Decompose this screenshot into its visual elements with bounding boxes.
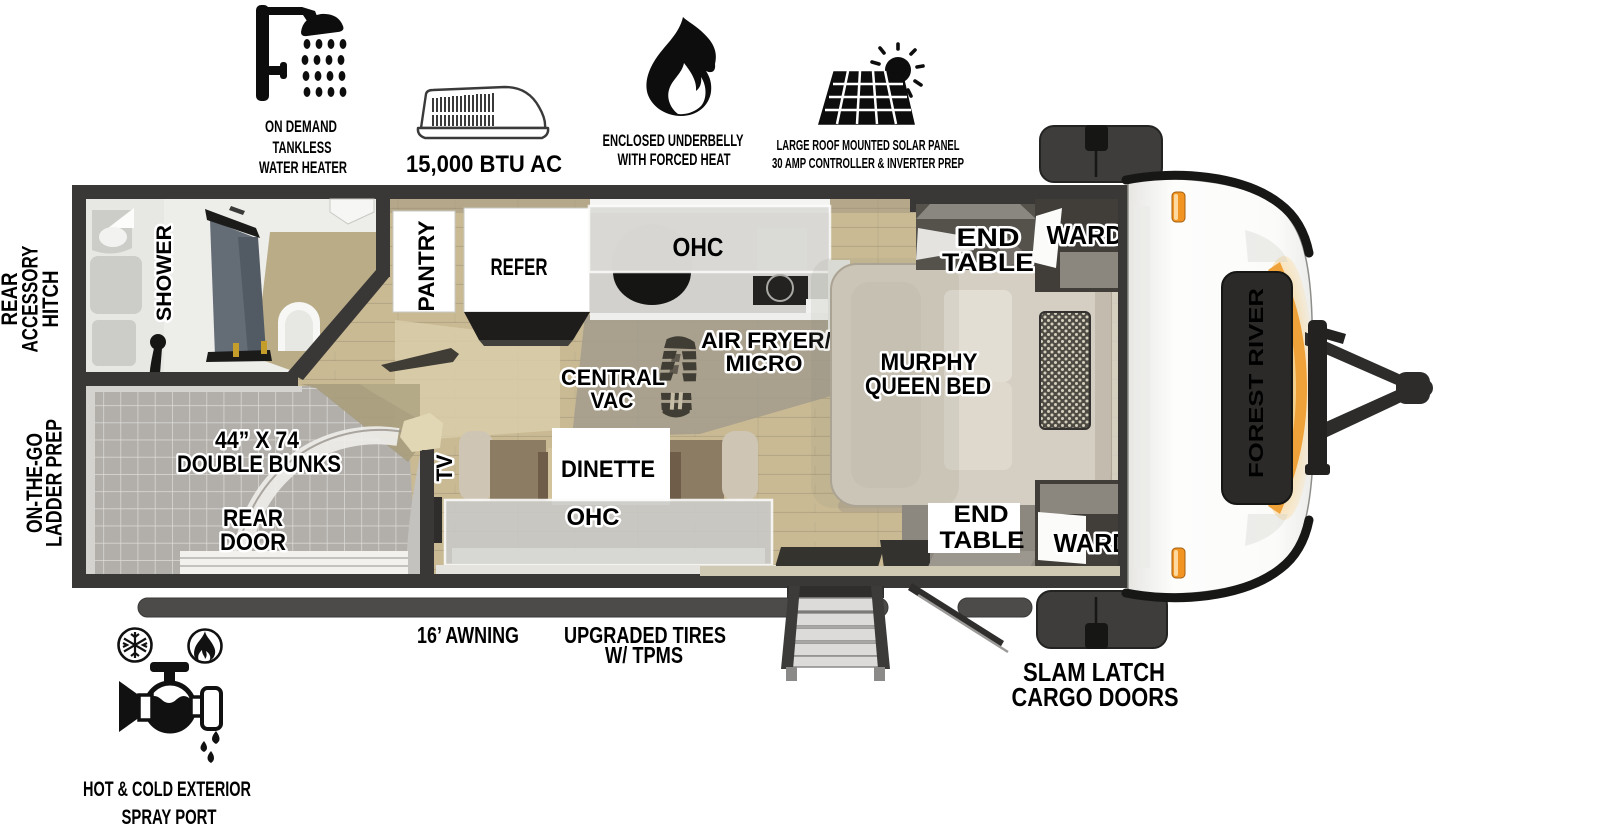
svg-text:FOREST RIVER: FOREST RIVER <box>1246 287 1268 478</box>
svg-text:WATER HEATER: WATER HEATER <box>259 158 347 177</box>
svg-text:MURPHY: MURPHY <box>881 349 978 376</box>
svg-text:TABLE: TABLE <box>942 249 1034 277</box>
svg-text:DINETTE: DINETTE <box>561 456 655 483</box>
svg-text:REFER: REFER <box>491 254 548 281</box>
svg-text:W/ TPMS: W/ TPMS <box>605 642 683 668</box>
svg-text:VAC: VAC <box>591 388 634 413</box>
svg-text:DOUBLE BUNKS: DOUBLE BUNKS <box>177 451 341 478</box>
svg-text:TANKLESS: TANKLESS <box>273 138 332 157</box>
svg-text:WARD: WARD <box>1047 220 1124 250</box>
svg-text:SPRAY PORT: SPRAY PORT <box>122 806 217 829</box>
svg-text:CARGO DOORS: CARGO DOORS <box>1012 682 1179 712</box>
svg-text:15,000 BTU AC: 15,000 BTU AC <box>406 151 562 178</box>
svg-text:CENTRAL: CENTRAL <box>561 365 665 390</box>
svg-text:ENCLOSED UNDERBELLY: ENCLOSED UNDERBELLY <box>603 131 744 150</box>
svg-text:TABLE: TABLE <box>940 527 1025 554</box>
svg-text:DOOR: DOOR <box>220 529 286 556</box>
svg-text:ON DEMAND: ON DEMAND <box>265 117 337 136</box>
svg-text:PANTRY: PANTRY <box>414 220 439 311</box>
svg-text:ON-THE-GOLADDER PREP: ON-THE-GOLADDER PREP <box>22 419 67 547</box>
svg-text:END: END <box>954 501 1009 528</box>
svg-text:WITH FORCED HEAT: WITH FORCED HEAT <box>618 150 731 169</box>
svg-text:HOT & COLD EXTERIOR: HOT & COLD EXTERIOR <box>83 778 251 801</box>
svg-text:REAR: REAR <box>223 505 283 532</box>
svg-text:END: END <box>957 224 1020 252</box>
svg-text:SHOWER: SHOWER <box>152 225 176 321</box>
svg-text:44” X 74: 44” X 74 <box>215 427 300 454</box>
svg-text:OHC: OHC <box>673 232 724 262</box>
svg-text:TV: TV <box>432 454 457 481</box>
svg-text:16’ AWNING: 16’ AWNING <box>417 622 519 648</box>
svg-text:QUEEN BED: QUEEN BED <box>865 373 991 400</box>
svg-text:30 AMP CONTROLLER & INVERTER P: 30 AMP CONTROLLER & INVERTER PREP <box>772 155 964 172</box>
svg-text:OHC: OHC <box>567 504 620 531</box>
svg-text:LARGE ROOF MOUNTED SOLAR PANEL: LARGE ROOF MOUNTED SOLAR PANEL <box>777 137 960 154</box>
svg-text:MICRO: MICRO <box>726 351 803 376</box>
